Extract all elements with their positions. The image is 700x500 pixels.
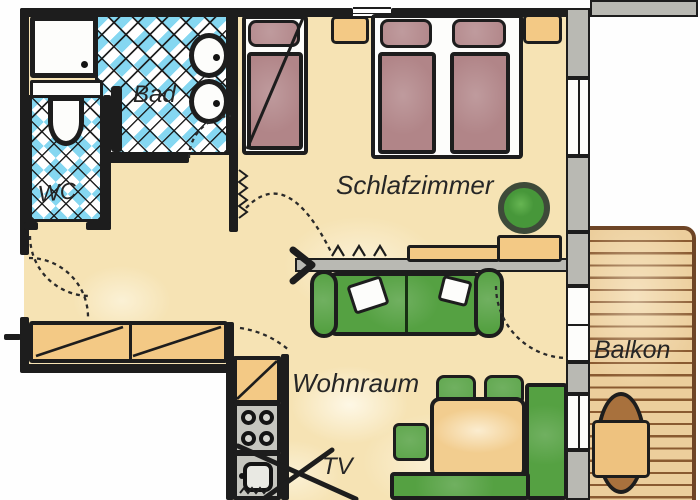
door-leaf-line bbox=[568, 324, 588, 326]
living-room-label: Wohnraum bbox=[292, 370, 419, 396]
wc-label: WC bbox=[37, 179, 78, 206]
towel-radiator bbox=[111, 86, 122, 152]
corner-bench-bottom bbox=[390, 472, 530, 500]
double-bed-pillow-2 bbox=[452, 19, 506, 48]
wall-bathroom-bedroom bbox=[229, 8, 238, 232]
toilet bbox=[48, 96, 84, 146]
sofa-arm-left bbox=[310, 270, 338, 338]
double-bed-mattress-1 bbox=[378, 52, 436, 154]
wall-left-upper bbox=[20, 8, 29, 255]
basin-drain bbox=[213, 54, 220, 61]
dining-table bbox=[430, 397, 526, 479]
floor-plan: Bad WC Schlafzimmer Wohnraum Balkon TV bbox=[0, 0, 700, 500]
wall-bathroom-bottom bbox=[103, 154, 189, 163]
sideboard-small bbox=[497, 235, 562, 262]
double-bed-mattress-2 bbox=[450, 52, 510, 154]
single-bed-pillow bbox=[248, 20, 300, 47]
counter-divider bbox=[129, 325, 132, 359]
bedroom-label: Schlafzimmer bbox=[336, 172, 493, 198]
balcony-door-leaf bbox=[566, 286, 590, 362]
stove bbox=[233, 402, 281, 454]
wall-right-upper bbox=[566, 8, 590, 78]
sofa-arm-right bbox=[474, 268, 504, 338]
wall-wc-right bbox=[103, 95, 111, 230]
wall-wc-bottom-stub-left bbox=[24, 222, 38, 230]
window-pane-line bbox=[578, 396, 580, 448]
single-bed-mattress bbox=[247, 52, 303, 150]
stove-burner bbox=[259, 410, 274, 425]
kitchen-counter-row bbox=[29, 321, 228, 363]
living-room-window bbox=[566, 394, 590, 450]
kitchen-sink-unit bbox=[233, 452, 281, 500]
stove-burner bbox=[241, 431, 256, 446]
wall-right-living-upper bbox=[566, 232, 590, 286]
washbasin-2 bbox=[189, 79, 229, 124]
wall-right-living-lower bbox=[566, 450, 590, 500]
wall-bottom-left bbox=[20, 364, 233, 373]
basin-drain bbox=[213, 100, 220, 107]
corner-bench-right bbox=[525, 383, 568, 500]
bedroom-side-window bbox=[566, 78, 590, 156]
washing-machine bbox=[30, 16, 98, 78]
window-pane-line bbox=[578, 80, 580, 154]
tv-label: TV bbox=[322, 455, 353, 479]
nightstand-right bbox=[523, 14, 562, 44]
dining-chair-left bbox=[393, 423, 429, 461]
plant bbox=[498, 182, 550, 234]
kitchen-sink-basin bbox=[243, 462, 273, 492]
kitchen-cabinet bbox=[233, 356, 281, 404]
balcony-table-top bbox=[592, 420, 650, 478]
kitchen-sink-drain bbox=[239, 473, 245, 479]
wall-top-outer-gray bbox=[590, 0, 698, 17]
sideboard-long bbox=[407, 245, 500, 262]
washbasin-1 bbox=[189, 33, 229, 78]
balcony-label: Balkon bbox=[594, 338, 670, 363]
nightstand-left bbox=[331, 16, 369, 44]
wall-kitchen-right bbox=[281, 354, 289, 500]
washing-machine-knob bbox=[81, 61, 88, 68]
sofa-cushion-divider bbox=[405, 276, 408, 332]
wall-right-mid bbox=[566, 156, 590, 232]
wall-right-living-mid bbox=[566, 362, 590, 394]
stove-burner bbox=[241, 410, 256, 425]
stove-burner bbox=[259, 431, 274, 446]
bathroom-label: Bad bbox=[133, 83, 176, 107]
wall-wc-bottom-stub-right bbox=[86, 222, 111, 230]
entrance-threshold-tick bbox=[4, 334, 21, 340]
double-bed-pillow-1 bbox=[380, 19, 432, 48]
